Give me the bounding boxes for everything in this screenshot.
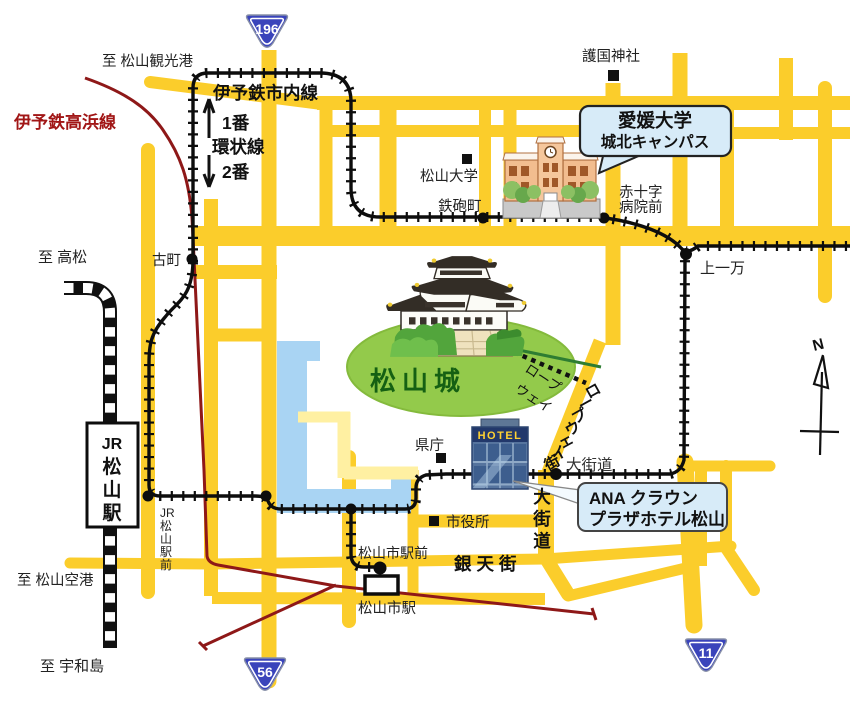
svg-text:1番: 1番	[222, 113, 250, 133]
svg-text:駅: 駅	[160, 545, 172, 559]
svg-text:病院前: 病院前	[619, 199, 663, 216]
svg-text:11: 11	[699, 645, 714, 661]
svg-text:県庁: 県庁	[415, 437, 444, 454]
svg-text:大街道: 大街道	[566, 456, 613, 474]
svg-text:松山大学: 松山大学	[420, 168, 478, 185]
svg-text:鉄砲町: 鉄砲町	[438, 198, 482, 215]
svg-text:赤十字: 赤十字	[619, 184, 663, 201]
svg-text:至 松山空港: 至 松山空港	[17, 572, 94, 589]
svg-text:JR: JR	[102, 436, 123, 453]
svg-text:196: 196	[255, 21, 279, 37]
svg-text:松: 松	[102, 455, 121, 478]
svg-text:市役所: 市役所	[446, 514, 490, 531]
svg-text:松: 松	[160, 519, 172, 533]
svg-text:伊予鉄市内線: 伊予鉄市内線	[212, 83, 318, 103]
svg-text:松山市駅前: 松山市駅前	[358, 545, 428, 561]
svg-text:銀天街: 銀天街	[454, 554, 522, 574]
svg-text:56: 56	[257, 664, 273, 680]
svg-text:道: 道	[533, 531, 551, 551]
svg-text:松山城: 松山城	[370, 367, 466, 396]
svg-text:駅: 駅	[101, 502, 122, 524]
svg-text:環状線: 環状線	[212, 137, 265, 157]
svg-text:2番: 2番	[222, 162, 250, 182]
svg-text:愛媛大学: 愛媛大学	[618, 110, 692, 131]
svg-text:松山市駅: 松山市駅	[358, 600, 416, 617]
svg-text:JR: JR	[160, 506, 175, 520]
svg-text:上一万: 上一万	[700, 260, 745, 277]
svg-text:山: 山	[102, 479, 121, 501]
svg-text:古町: 古町	[152, 252, 181, 269]
svg-text:HOTEL: HOTEL	[478, 430, 523, 442]
svg-text:ANA クラウン: ANA クラウン	[589, 489, 698, 508]
svg-text:伊予鉄高浜線: 伊予鉄高浜線	[13, 112, 116, 132]
svg-text:前: 前	[160, 557, 172, 572]
svg-text:街: 街	[532, 509, 551, 529]
svg-text:護国神社: 護国神社	[582, 48, 640, 65]
svg-text:城北キャンパス: 城北キャンパス	[601, 133, 710, 151]
svg-text:山: 山	[160, 532, 172, 546]
svg-text:プラザホテル松山: プラザホテル松山	[589, 509, 725, 529]
svg-text:至 宇和島: 至 宇和島	[40, 658, 104, 675]
svg-text:至 高松: 至 高松	[38, 249, 87, 266]
svg-text:大: 大	[533, 487, 551, 507]
svg-text:至 松山観光港: 至 松山観光港	[102, 53, 194, 70]
